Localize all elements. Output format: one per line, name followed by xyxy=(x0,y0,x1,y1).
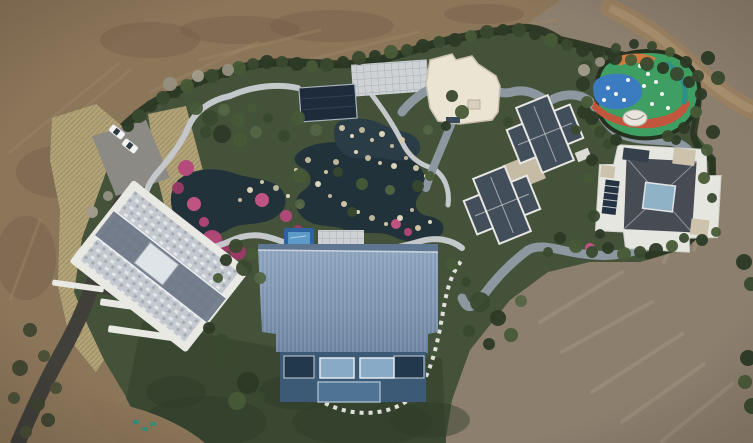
aerial-photo xyxy=(0,0,753,443)
aerial-photo-canvas xyxy=(0,0,753,443)
vignette xyxy=(0,0,753,443)
